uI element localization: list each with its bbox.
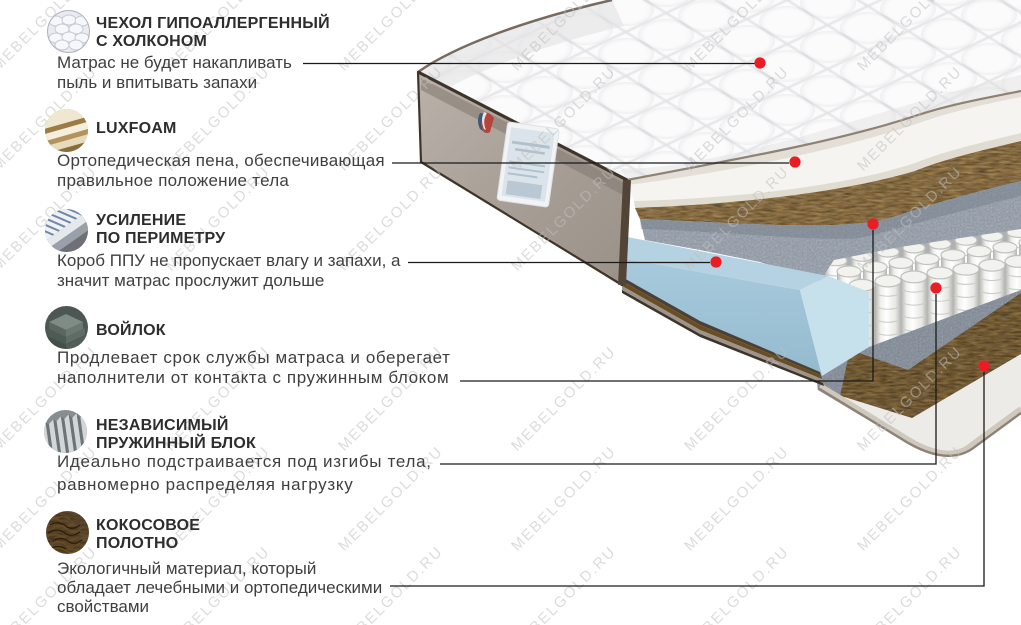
svg-text:MEBELGOLD.RU: MEBELGOLD.RU: [681, 443, 793, 555]
svg-text:MEBELGOLD.RU: MEBELGOLD.RU: [508, 443, 620, 555]
svg-text:MEBELGOLD.RU: MEBELGOLD.RU: [854, 543, 966, 625]
svg-text:MEBELGOLD.RU: MEBELGOLD.RU: [681, 343, 793, 455]
svg-text:MEBELGOLD.RU: MEBELGOLD.RU: [508, 543, 620, 625]
svg-text:MEBELGOLD.RU: MEBELGOLD.RU: [854, 443, 966, 555]
svg-text:MEBELGOLD.RU: MEBELGOLD.RU: [508, 343, 620, 455]
svg-text:MEBELGOLD.RU: MEBELGOLD.RU: [681, 543, 793, 625]
